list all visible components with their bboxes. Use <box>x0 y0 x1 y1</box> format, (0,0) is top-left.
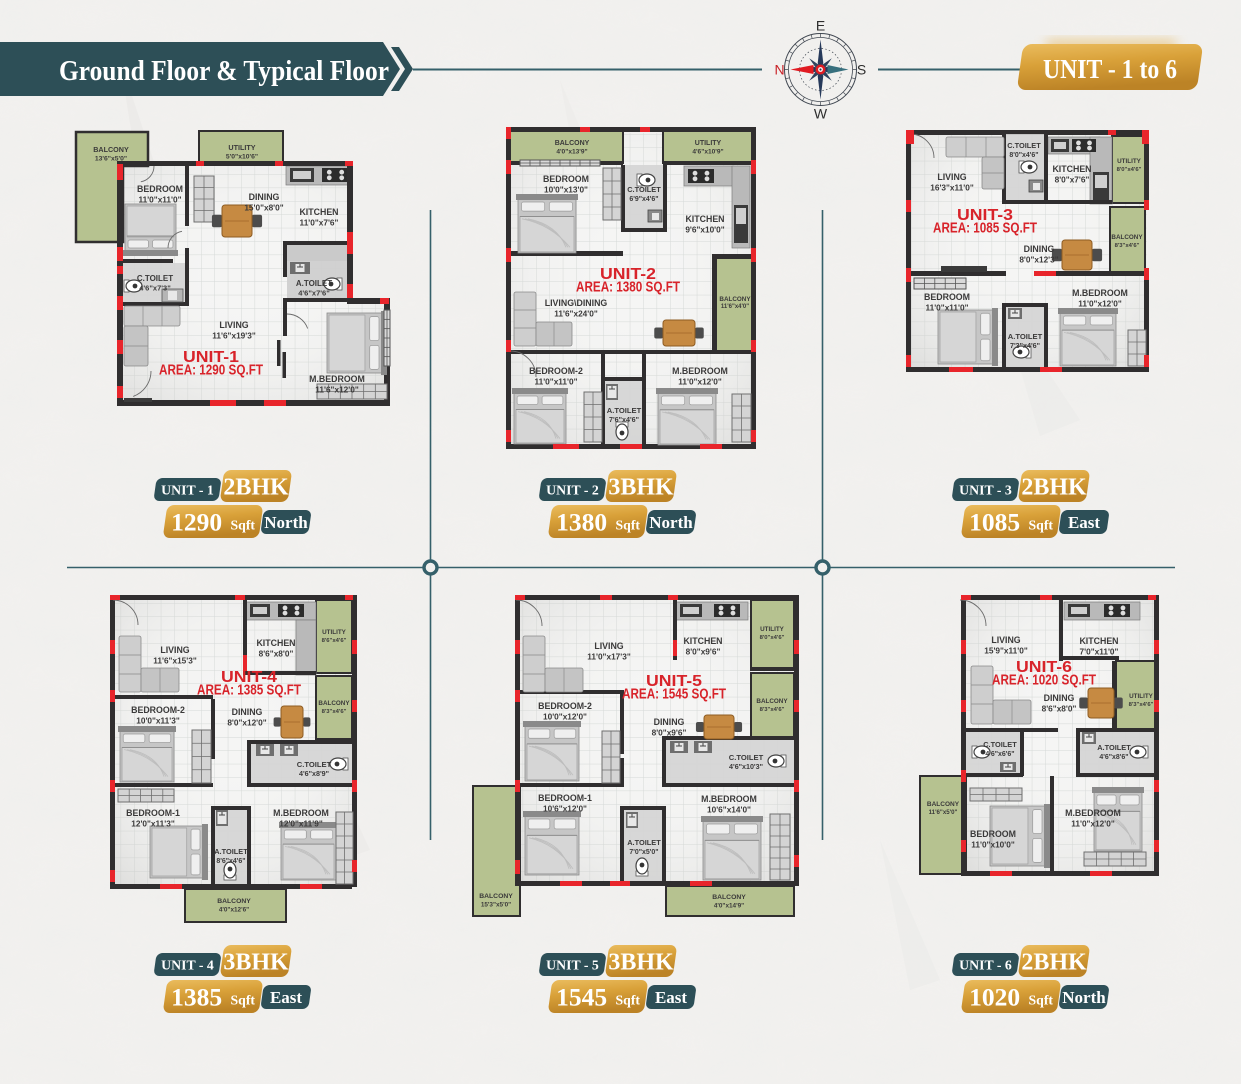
svg-text:8'3"x4'6": 8'3"x4'6" <box>1129 702 1154 708</box>
svg-text:11'6"x5'0": 11'6"x5'0" <box>929 809 958 816</box>
svg-text:11'0"x10'0": 11'0"x10'0" <box>971 840 1015 849</box>
svg-text:A.TOILET: A.TOILET <box>607 406 642 415</box>
svg-text:KITCHEN: KITCHEN <box>1052 164 1091 174</box>
svg-text:East: East <box>270 988 302 1007</box>
svg-text:8'0"x9'6": 8'0"x9'6" <box>652 728 687 737</box>
svg-text:7'0"x5'0": 7'0"x5'0" <box>629 849 658 856</box>
svg-text:BEDROOM: BEDROOM <box>970 829 1016 839</box>
svg-text:12'0"x11'9": 12'0"x11'9" <box>279 819 323 828</box>
svg-text:DINING: DINING <box>1044 693 1075 703</box>
svg-text:C.TOILET: C.TOILET <box>627 185 661 194</box>
svg-text:E: E <box>816 18 825 34</box>
svg-text:1380: 1380 <box>556 508 607 537</box>
svg-text:A.TOILET: A.TOILET <box>296 279 332 288</box>
svg-text:C.TOILET: C.TOILET <box>297 760 332 769</box>
svg-text:12'0"x11'3": 12'0"x11'3" <box>131 819 175 828</box>
svg-text:KITCHEN: KITCHEN <box>1079 636 1118 646</box>
svg-text:M.BEDROOM: M.BEDROOM <box>309 374 365 384</box>
svg-text:C.TOILET: C.TOILET <box>729 753 764 762</box>
svg-text:BALCONY: BALCONY <box>318 700 350 707</box>
svg-text:11'0"x12'0": 11'0"x12'0" <box>678 377 722 386</box>
svg-text:7'3"x4'6": 7'3"x4'6" <box>1010 342 1040 350</box>
svg-text:A.TOILET: A.TOILET <box>1097 743 1131 752</box>
svg-text:15'3"x5'0": 15'3"x5'0" <box>481 901 511 908</box>
svg-text:1290: 1290 <box>171 508 222 537</box>
svg-text:BALCONY: BALCONY <box>712 894 746 901</box>
svg-text:North: North <box>649 513 693 532</box>
svg-text:DINING: DINING <box>249 192 280 202</box>
svg-text:8'6"x4'6": 8'6"x4'6" <box>216 858 245 865</box>
svg-text:A.TOILET: A.TOILET <box>1008 332 1043 341</box>
svg-text:8'0"x4'6": 8'0"x4'6" <box>1009 152 1038 159</box>
svg-text:W: W <box>814 106 828 122</box>
svg-text:15'9"x11'0": 15'9"x11'0" <box>984 646 1028 655</box>
svg-text:4'6"x7'3": 4'6"x7'3" <box>139 284 171 293</box>
svg-text:KITCHEN: KITCHEN <box>299 207 338 217</box>
svg-text:9'6"x10'0": 9'6"x10'0" <box>685 225 724 234</box>
svg-text:BALCONY: BALCONY <box>217 898 251 905</box>
svg-text:LIVING: LIVING <box>160 645 189 655</box>
svg-text:11'6"x15'3": 11'6"x15'3" <box>153 656 197 665</box>
svg-text:KITCHEN: KITCHEN <box>256 638 295 648</box>
svg-text:UTILITY: UTILITY <box>1117 158 1142 165</box>
svg-text:LIVING: LIVING <box>991 635 1020 645</box>
svg-text:AREA: 1290 SQ.FT: AREA: 1290 SQ.FT <box>159 363 263 379</box>
svg-text:4'6"x6'6": 4'6"x6'6" <box>985 751 1014 758</box>
svg-text:BEDROOM-2: BEDROOM-2 <box>529 366 583 376</box>
svg-text:2BHK: 2BHK <box>1021 474 1087 500</box>
svg-text:3BHK: 3BHK <box>608 474 674 500</box>
svg-text:8'3"x4'6": 8'3"x4'6" <box>760 707 785 713</box>
svg-text:4'0"x13'9": 4'0"x13'9" <box>556 149 587 156</box>
svg-text:AREA: 1385 SQ.FT: AREA: 1385 SQ.FT <box>197 683 301 699</box>
svg-text:5'0"x10'6": 5'0"x10'6" <box>226 154 258 161</box>
svg-text:3BHK: 3BHK <box>223 949 289 975</box>
svg-text:11'0"x11'0": 11'0"x11'0" <box>534 377 577 386</box>
svg-text:M.BEDROOM: M.BEDROOM <box>273 808 329 818</box>
svg-text:UNIT - 3: UNIT - 3 <box>959 482 1012 497</box>
svg-text:M.BEDROOM: M.BEDROOM <box>1065 808 1121 818</box>
svg-text:DINING: DINING <box>654 717 685 727</box>
svg-text:DINING: DINING <box>232 707 263 717</box>
svg-text:7'0"x11'0": 7'0"x11'0" <box>1080 647 1119 656</box>
svg-text:10'0"x12'0": 10'0"x12'0" <box>543 712 587 721</box>
svg-text:KITCHEN: KITCHEN <box>683 636 722 646</box>
svg-text:11'6"x4'0": 11'6"x4'0" <box>721 304 749 310</box>
svg-text:C.TOILET: C.TOILET <box>983 740 1017 749</box>
svg-text:C.TOILET: C.TOILET <box>1007 141 1041 150</box>
svg-text:1385: 1385 <box>171 983 222 1012</box>
svg-text:UTILITY: UTILITY <box>1129 693 1154 700</box>
svg-text:UNIT - 1: UNIT - 1 <box>161 482 214 497</box>
svg-text:AREA: 1380 SQ.FT: AREA: 1380 SQ.FT <box>576 280 680 296</box>
svg-text:10'6"x14'0": 10'6"x14'0" <box>707 805 751 814</box>
svg-text:Sqft: Sqft <box>231 992 256 1007</box>
svg-text:Sqft: Sqft <box>231 517 256 532</box>
svg-text:BALCONY: BALCONY <box>756 698 788 705</box>
svg-text:10'0"x13'0": 10'0"x13'0" <box>544 185 588 194</box>
svg-text:UTILITY: UTILITY <box>760 626 785 633</box>
svg-text:AREA: 1545 SQ.FT: AREA: 1545 SQ.FT <box>622 687 726 703</box>
svg-text:East: East <box>655 988 687 1007</box>
svg-text:10'6"x12'0": 10'6"x12'0" <box>543 804 587 813</box>
svg-text:UTILITY: UTILITY <box>695 140 722 147</box>
svg-text:11'6"x19'3": 11'6"x19'3" <box>212 331 256 340</box>
svg-text:LIVING: LIVING <box>219 320 248 330</box>
svg-text:KITCHEN: KITCHEN <box>685 214 724 224</box>
svg-text:11'0"x12'0": 11'0"x12'0" <box>1078 299 1122 308</box>
svg-text:AREA: 1085 SQ.FT: AREA: 1085 SQ.FT <box>933 221 1037 237</box>
svg-text:BEDROOM: BEDROOM <box>543 174 589 184</box>
svg-text:8'0"x7'6": 8'0"x7'6" <box>1055 175 1090 184</box>
svg-text:AREA: 1020 SQ.FT: AREA: 1020 SQ.FT <box>992 673 1096 689</box>
svg-text:A.TOILET: A.TOILET <box>627 838 661 847</box>
svg-text:1085: 1085 <box>969 508 1020 537</box>
svg-text:LIVING: LIVING <box>594 641 623 651</box>
svg-text:North: North <box>1062 988 1106 1007</box>
svg-text:BALCONY: BALCONY <box>719 296 751 303</box>
svg-text:4'6"x10'9": 4'6"x10'9" <box>692 149 723 156</box>
svg-text:UNIT - 4: UNIT - 4 <box>161 957 214 972</box>
svg-text:8'6"x4'6": 8'6"x4'6" <box>322 638 347 644</box>
svg-text:M.BEDROOM: M.BEDROOM <box>1072 288 1128 298</box>
svg-text:Sqft: Sqft <box>616 992 641 1007</box>
svg-text:11'0"x11'0": 11'0"x11'0" <box>925 303 968 312</box>
svg-text:8'0"x4'6": 8'0"x4'6" <box>760 635 785 641</box>
svg-text:BEDROOM-2: BEDROOM-2 <box>131 705 185 715</box>
svg-text:11'6"x24'0": 11'6"x24'0" <box>554 309 598 318</box>
svg-text:UTILITY: UTILITY <box>228 143 255 152</box>
svg-text:UNIT - 1 to 6: UNIT - 1 to 6 <box>1043 54 1177 84</box>
svg-text:11'0"x11'0": 11'0"x11'0" <box>138 195 181 204</box>
svg-text:UNIT - 5: UNIT - 5 <box>546 957 599 972</box>
svg-text:LIVING\DINING: LIVING\DINING <box>545 298 608 308</box>
svg-text:UNIT - 6: UNIT - 6 <box>959 957 1012 972</box>
svg-text:North: North <box>264 513 308 532</box>
svg-text:8'3"x4'6": 8'3"x4'6" <box>322 709 347 715</box>
svg-text:8'0"x4'6": 8'0"x4'6" <box>1117 167 1142 173</box>
svg-text:16'3"x11'0": 16'3"x11'0" <box>930 183 974 192</box>
svg-text:8'0"x9'6": 8'0"x9'6" <box>686 647 721 656</box>
svg-text:2BHK: 2BHK <box>223 474 289 500</box>
svg-text:M.BEDROOM: M.BEDROOM <box>672 366 728 376</box>
svg-text:UTILITY: UTILITY <box>322 629 347 636</box>
svg-text:4'6"x8'6": 4'6"x8'6" <box>1099 754 1128 761</box>
svg-text:1545: 1545 <box>556 983 607 1012</box>
svg-text:BEDROOM-1: BEDROOM-1 <box>538 793 592 803</box>
svg-text:8'0"x12'0": 8'0"x12'0" <box>227 718 266 727</box>
svg-text:8'6"x8'0": 8'6"x8'0" <box>259 649 294 658</box>
svg-text:2BHK: 2BHK <box>1021 949 1087 975</box>
svg-text:Ground Floor & Typical Floor: Ground Floor & Typical Floor <box>59 55 389 87</box>
svg-text:BALCONY: BALCONY <box>927 801 960 808</box>
svg-text:BEDROOM-2: BEDROOM-2 <box>538 701 592 711</box>
svg-text:A.TOILET: A.TOILET <box>214 847 248 856</box>
svg-text:4'0"x14'9": 4'0"x14'9" <box>714 902 744 909</box>
svg-text:11'6"x12'0": 11'6"x12'0" <box>315 385 359 394</box>
svg-text:11'0"x17'3": 11'0"x17'3" <box>587 652 631 661</box>
svg-text:M.BEDROOM: M.BEDROOM <box>701 794 757 804</box>
svg-text:Sqft: Sqft <box>1029 992 1054 1007</box>
svg-text:DINING: DINING <box>1024 244 1055 254</box>
svg-text:East: East <box>1068 513 1100 532</box>
svg-text:UNIT - 2: UNIT - 2 <box>546 482 599 497</box>
svg-text:15'0"x8'0": 15'0"x8'0" <box>244 203 283 212</box>
svg-text:8'0"x12'3": 8'0"x12'3" <box>1019 255 1058 264</box>
svg-text:7'6"x4'6": 7'6"x4'6" <box>609 416 639 424</box>
svg-text:BALCONY: BALCONY <box>1111 234 1143 241</box>
svg-text:8'6"x8'0": 8'6"x8'0" <box>1042 704 1077 713</box>
svg-text:4'6"x10'3": 4'6"x10'3" <box>729 763 763 771</box>
svg-text:11'0"x12'0": 11'0"x12'0" <box>1071 819 1115 828</box>
svg-text:Sqft: Sqft <box>1029 517 1054 532</box>
svg-text:10'0"x11'3": 10'0"x11'3" <box>136 716 180 725</box>
svg-text:4'6"x8'9": 4'6"x8'9" <box>299 770 329 778</box>
svg-text:11'0"x7'6": 11'0"x7'6" <box>300 218 339 227</box>
svg-text:BALCONY: BALCONY <box>93 145 129 154</box>
svg-text:LIVING: LIVING <box>937 172 966 182</box>
svg-text:6'9"x4'6": 6'9"x4'6" <box>629 196 658 203</box>
svg-text:8'3"x4'6": 8'3"x4'6" <box>1115 243 1140 249</box>
svg-text:BEDROOM-1: BEDROOM-1 <box>126 808 180 818</box>
svg-text:BEDROOM: BEDROOM <box>924 292 970 302</box>
svg-text:BALCONY: BALCONY <box>479 893 513 900</box>
svg-text:S: S <box>857 62 866 78</box>
svg-text:C.TOILET: C.TOILET <box>137 274 173 283</box>
svg-text:1020: 1020 <box>969 983 1020 1012</box>
svg-text:3BHK: 3BHK <box>608 949 674 975</box>
svg-text:Sqft: Sqft <box>616 517 641 532</box>
svg-text:4'6"x7'6": 4'6"x7'6" <box>298 289 330 298</box>
svg-text:N: N <box>774 62 784 78</box>
svg-text:BALCONY: BALCONY <box>555 140 590 147</box>
svg-text:BEDROOM: BEDROOM <box>137 184 183 194</box>
svg-text:4'0"x12'6": 4'0"x12'6" <box>219 906 249 913</box>
